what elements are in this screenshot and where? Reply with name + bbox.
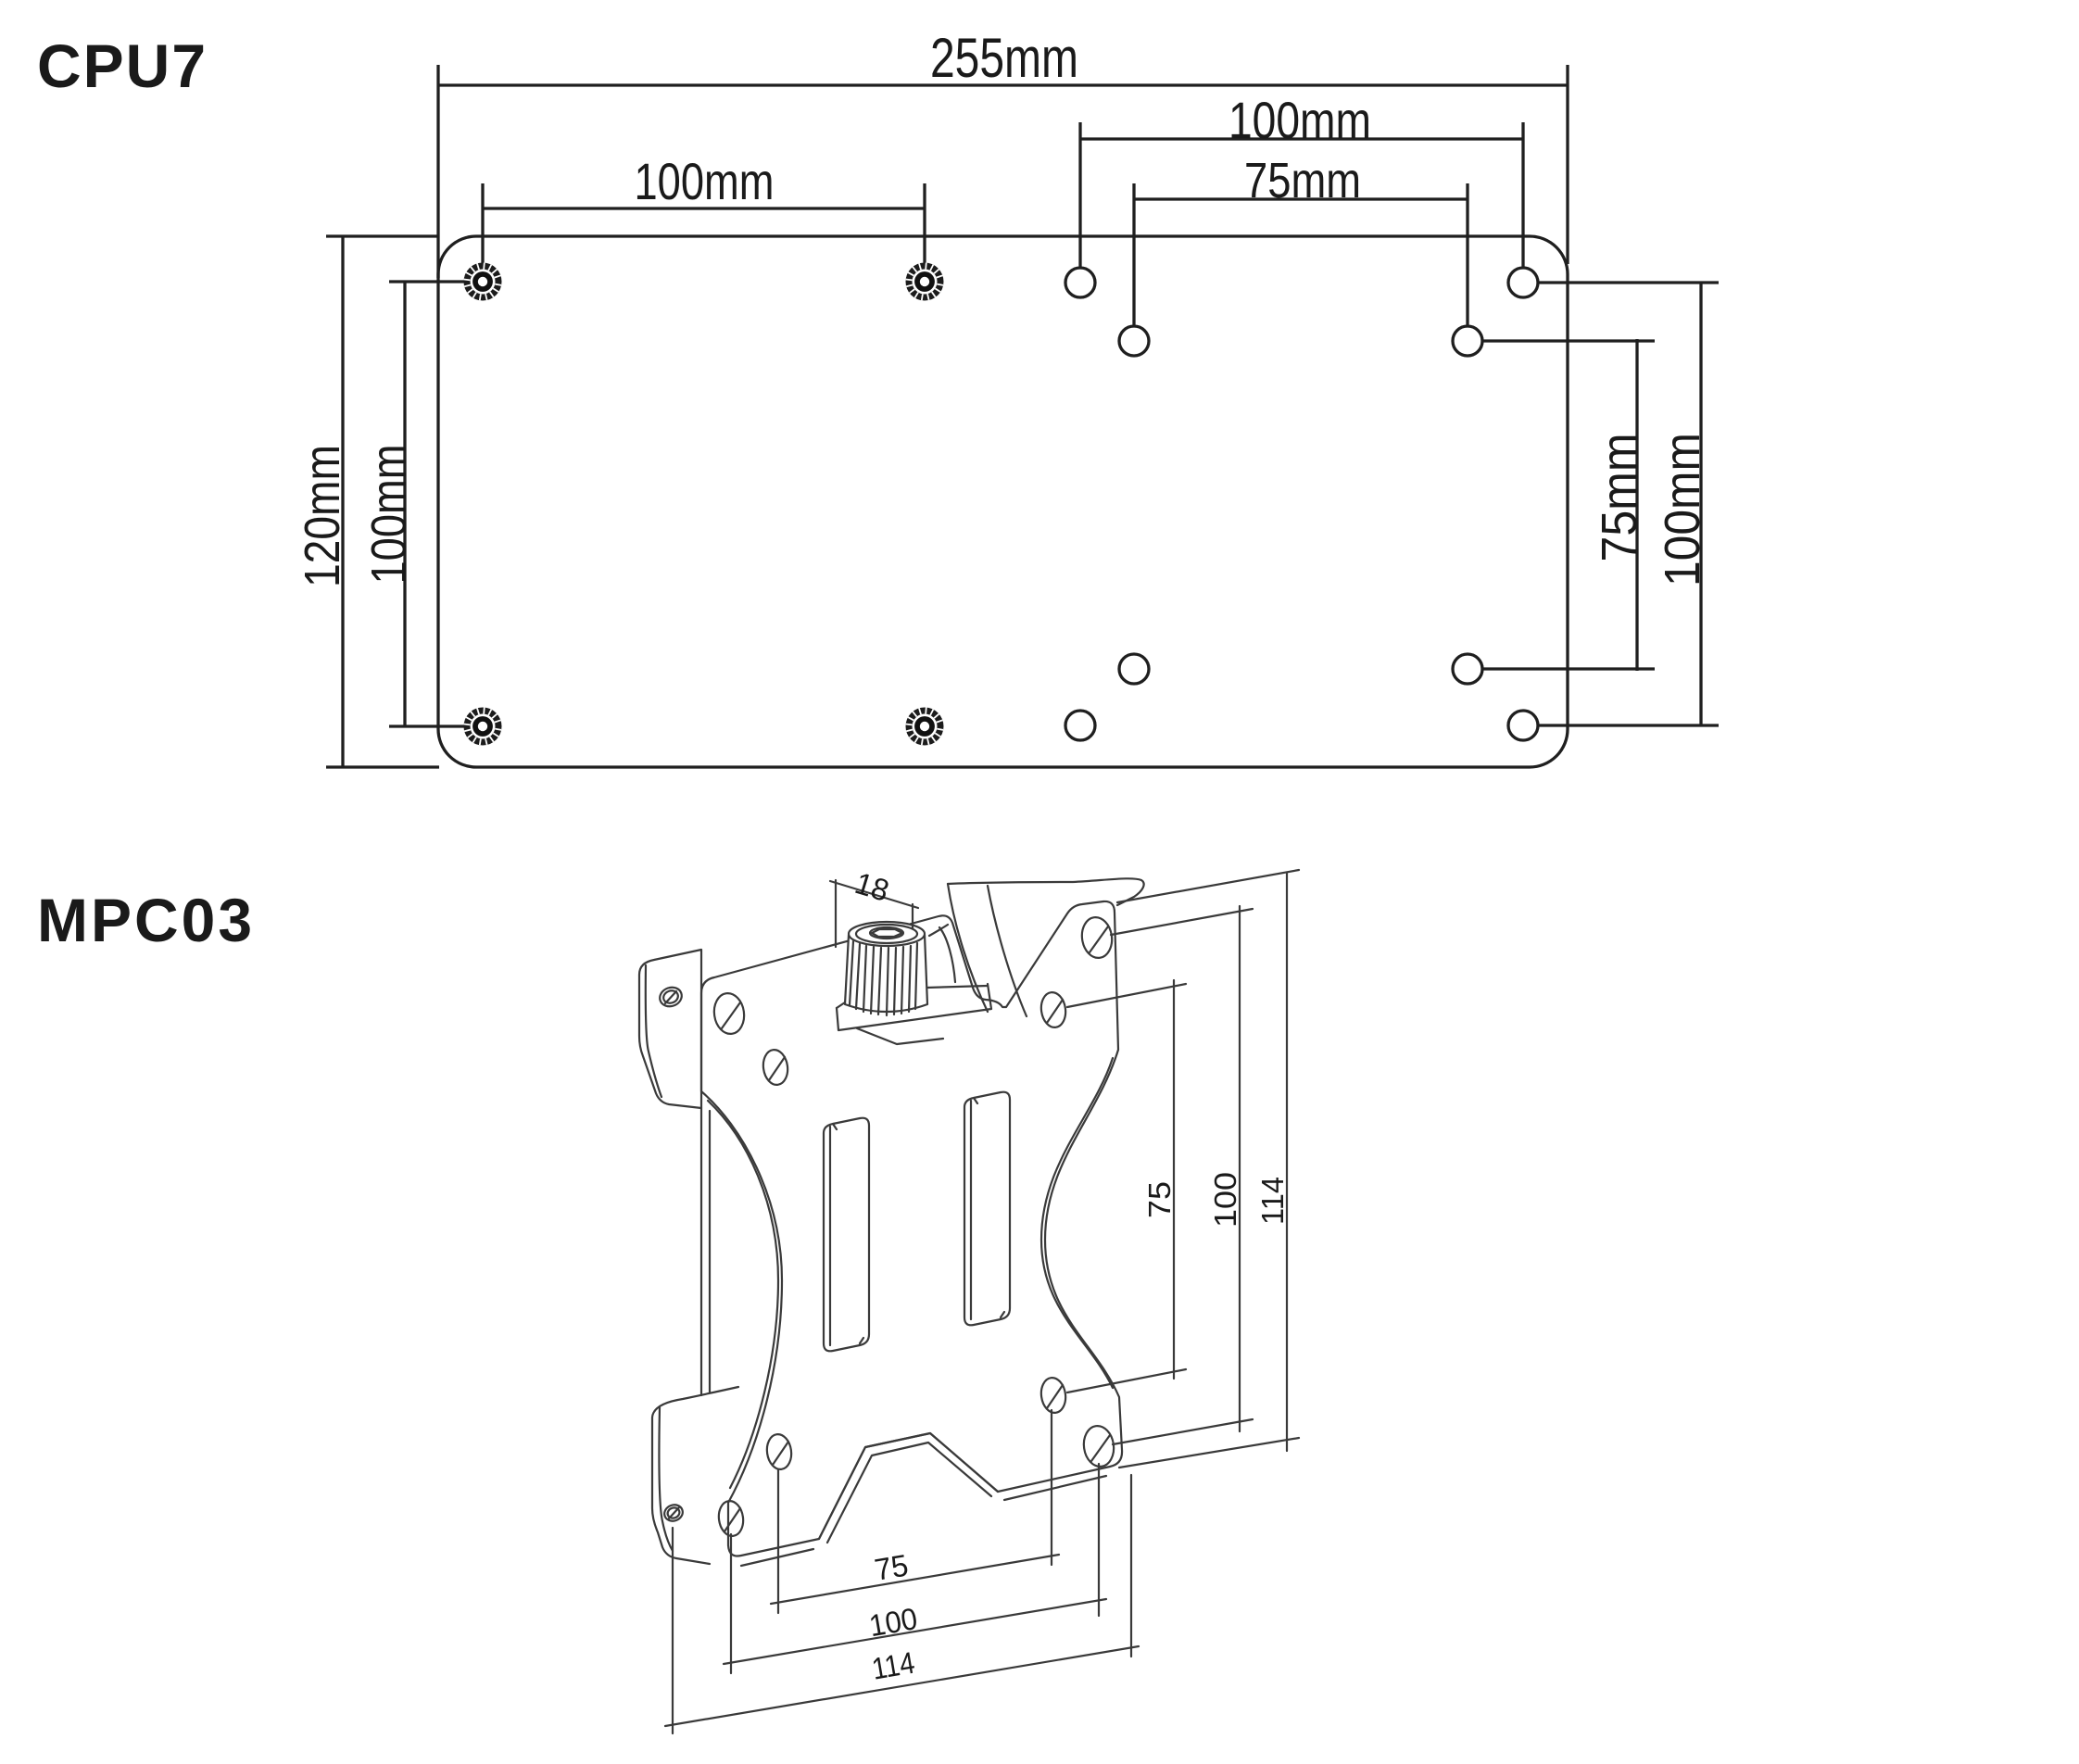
svg-text:75: 75 xyxy=(1142,1181,1177,1218)
svg-text:CPU7: CPU7 xyxy=(37,31,208,100)
svg-text:100mm: 100mm xyxy=(1228,91,1371,149)
svg-text:MPC03: MPC03 xyxy=(37,886,255,954)
svg-text:255mm: 255mm xyxy=(930,27,1078,89)
svg-text:100mm: 100mm xyxy=(1655,433,1710,586)
svg-text:114: 114 xyxy=(869,1645,917,1686)
svg-text:114: 114 xyxy=(1255,1177,1290,1225)
svg-text:75mm: 75mm xyxy=(1244,153,1361,208)
svg-text:120mm: 120mm xyxy=(295,445,350,587)
svg-text:75: 75 xyxy=(872,1547,911,1586)
svg-text:75mm: 75mm xyxy=(1592,434,1647,562)
svg-text:100mm: 100mm xyxy=(361,445,417,585)
svg-text:100mm: 100mm xyxy=(635,152,775,210)
svg-text:100: 100 xyxy=(1208,1172,1242,1228)
